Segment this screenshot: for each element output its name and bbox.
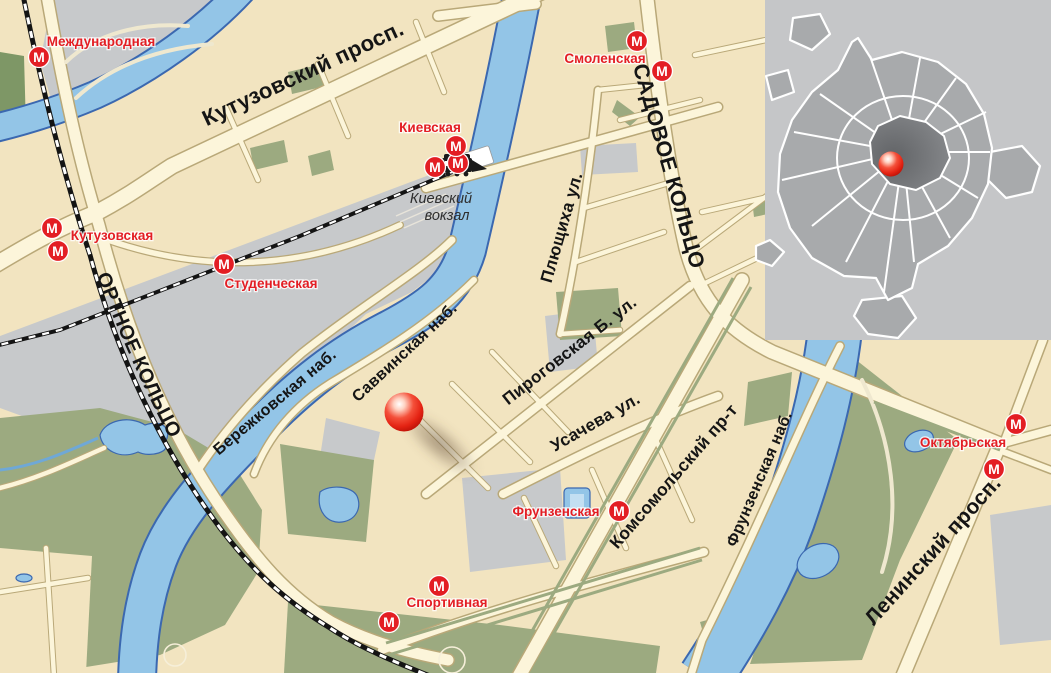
svg-text:М: М	[613, 503, 625, 519]
marker-ball	[385, 393, 424, 432]
city-overview-inset	[756, 0, 1051, 340]
station-label-studencheskaya: Студенческая	[225, 276, 318, 291]
station-label-oktyabrskaya: Октябрьская	[920, 435, 1006, 450]
svg-text:М: М	[429, 159, 441, 175]
metro-icon-kievskaya: М	[446, 136, 467, 157]
metro-icon-frunzenskaya: М	[609, 501, 630, 522]
svg-text:М: М	[988, 461, 1000, 477]
svg-text:М: М	[452, 155, 464, 171]
svg-text:М: М	[46, 220, 58, 236]
station-label-kievskaya: Киевская	[399, 120, 461, 135]
metro-icon-sportivnaya-2: М	[379, 612, 400, 633]
svg-text:М: М	[383, 614, 395, 630]
metro-icon-kutuzovskaya: М	[42, 218, 63, 239]
svg-text:М: М	[631, 33, 643, 49]
svg-text:М: М	[1010, 416, 1022, 432]
metro-icon-oktyabrskaya: М	[1006, 414, 1027, 435]
landmark-label-line2: вокзал	[425, 208, 470, 224]
svg-text:М: М	[656, 63, 668, 79]
metro-icon-smolenskaya-2: М	[652, 61, 673, 82]
metro-icon-kutuzovskaya-2: М	[48, 241, 69, 262]
station-label-kutuzovskaya: Кутузовская	[71, 228, 153, 243]
station-label-sportivnaya: Спортивная	[407, 595, 488, 610]
inset-location-marker	[879, 152, 904, 177]
svg-text:М: М	[433, 578, 445, 594]
station-label-frunzenskaya: Фрунзенская	[512, 504, 599, 519]
metro-icon-oktyabrskaya-2: М	[984, 459, 1005, 480]
station-label-smolenskaya: Смоленская	[564, 51, 645, 66]
metro-icon-sportivnaya: М	[429, 576, 450, 597]
svg-text:М: М	[218, 256, 230, 272]
moscow-transit-map: Кутузовский просп. САДОВОЕ КОЛЬЦО ТРЕТЬЕ…	[0, 0, 1051, 673]
metro-icon-kievskaya-3: М	[425, 157, 446, 178]
station-label-mezhdunarodnaya: Международная	[47, 34, 155, 49]
svg-text:М: М	[33, 49, 45, 65]
landmark-label-line1: Киевский	[410, 191, 472, 207]
svg-text:М: М	[450, 138, 462, 154]
metro-icon-studencheskaya: М	[214, 254, 235, 275]
svg-text:М: М	[52, 243, 64, 259]
metro-icon-smolenskaya: М	[627, 31, 648, 52]
metro-icon-mezhdunarodnaya: М	[29, 47, 50, 68]
